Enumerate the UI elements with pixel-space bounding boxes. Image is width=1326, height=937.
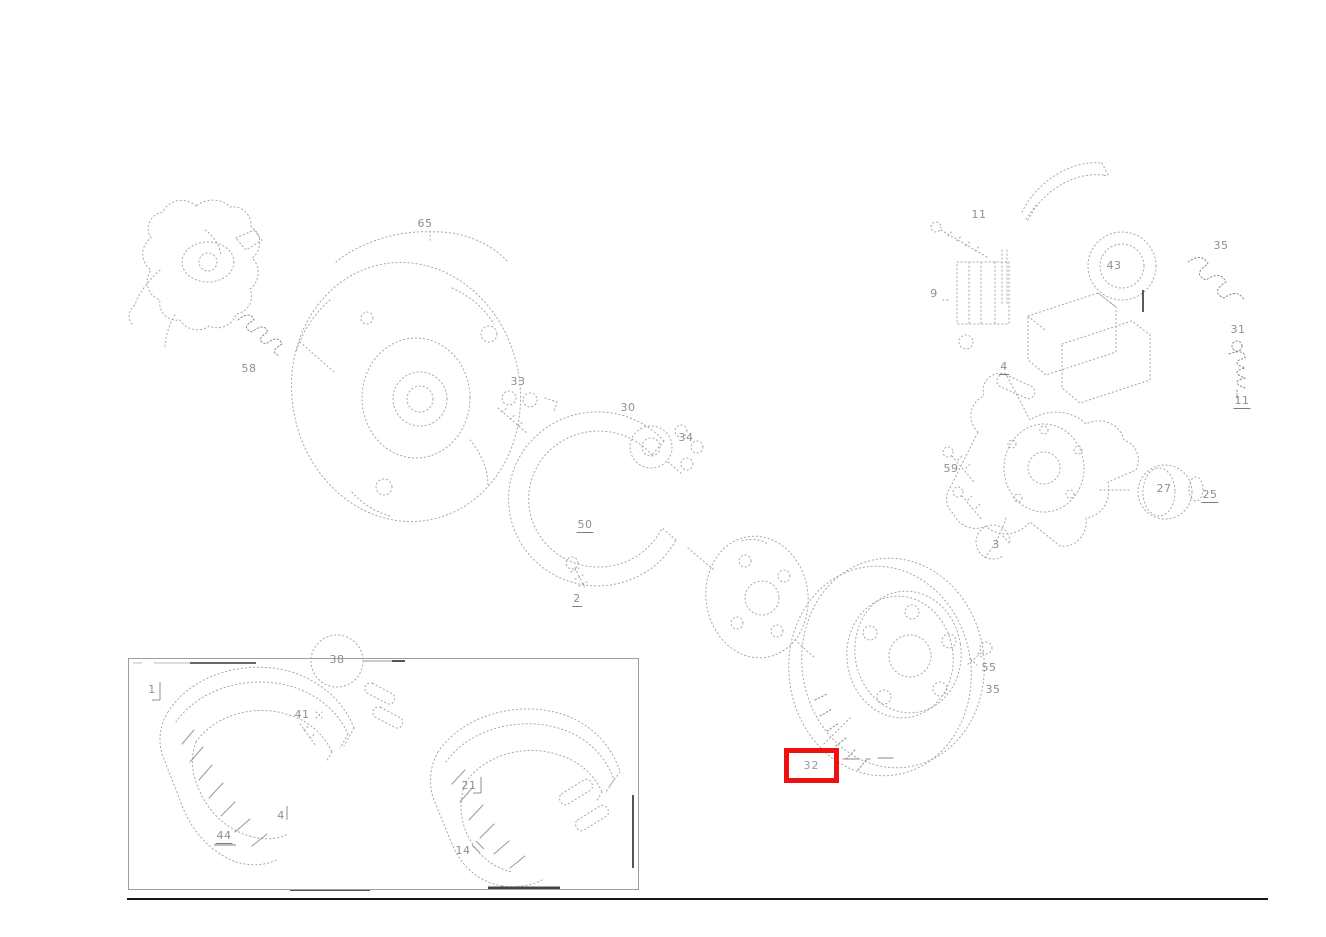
part-callout-30[interactable]: 30 [620,402,637,414]
part-callout-50[interactable]: 50 [577,519,594,533]
part-callout-31[interactable]: 31 [1230,324,1247,336]
part-callout-21[interactable]: 21 [461,780,478,792]
part-callout-11[interactable]: 11 [971,209,988,221]
part-callout-2[interactable]: 2 [572,593,582,607]
parts-diagram-page: 6558333034502553511943353111459272531384… [0,0,1326,937]
part-callout-27[interactable]: 27 [1156,483,1173,495]
part-callout-43[interactable]: 43 [1106,260,1123,272]
part-callout-33[interactable]: 33 [510,376,527,388]
part-callout-44[interactable]: 44 [216,830,233,844]
part-callout-55[interactable]: 55 [981,662,998,674]
part-callout-4[interactable]: 4 [276,810,286,822]
part-callout-65[interactable]: 65 [417,218,434,230]
part-callout-4[interactable]: 4 [999,361,1009,375]
part-callout-14[interactable]: 14 [455,845,472,857]
part-callout-34[interactable]: 34 [678,432,695,444]
part-callout-38[interactable]: 38 [329,654,346,666]
part-callout-35[interactable]: 35 [985,684,1002,696]
callout-layer: 6558333034502553511943353111459272531384… [0,0,1326,937]
part-callout-11[interactable]: 11 [1234,395,1251,409]
part-callout-25[interactable]: 25 [1202,489,1219,503]
part-callout-9[interactable]: 9 [929,288,939,300]
highlighted-part-label: 32 [804,759,820,772]
part-callout-1[interactable]: 1 [147,684,157,696]
part-callout-59[interactable]: 59 [943,463,960,475]
highlighted-part-box[interactable]: 32 [784,748,839,783]
part-callout-35[interactable]: 35 [1213,240,1230,252]
part-callout-3[interactable]: 3 [991,539,1001,551]
part-callout-41[interactable]: 41 [294,709,311,721]
part-callout-58[interactable]: 58 [241,363,258,375]
